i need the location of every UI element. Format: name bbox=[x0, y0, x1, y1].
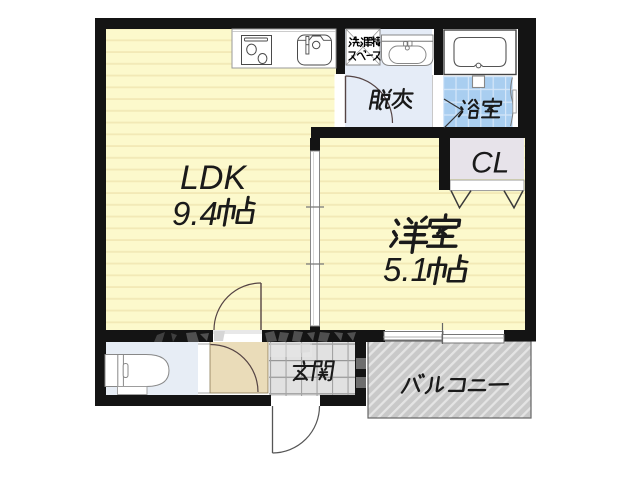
svg-text:LDK: LDK bbox=[180, 159, 247, 197]
svg-text:CL: CL bbox=[471, 147, 509, 180]
svg-text:9.4: 9.4 bbox=[172, 195, 218, 232]
svg-text:5.1: 5.1 bbox=[383, 251, 429, 288]
